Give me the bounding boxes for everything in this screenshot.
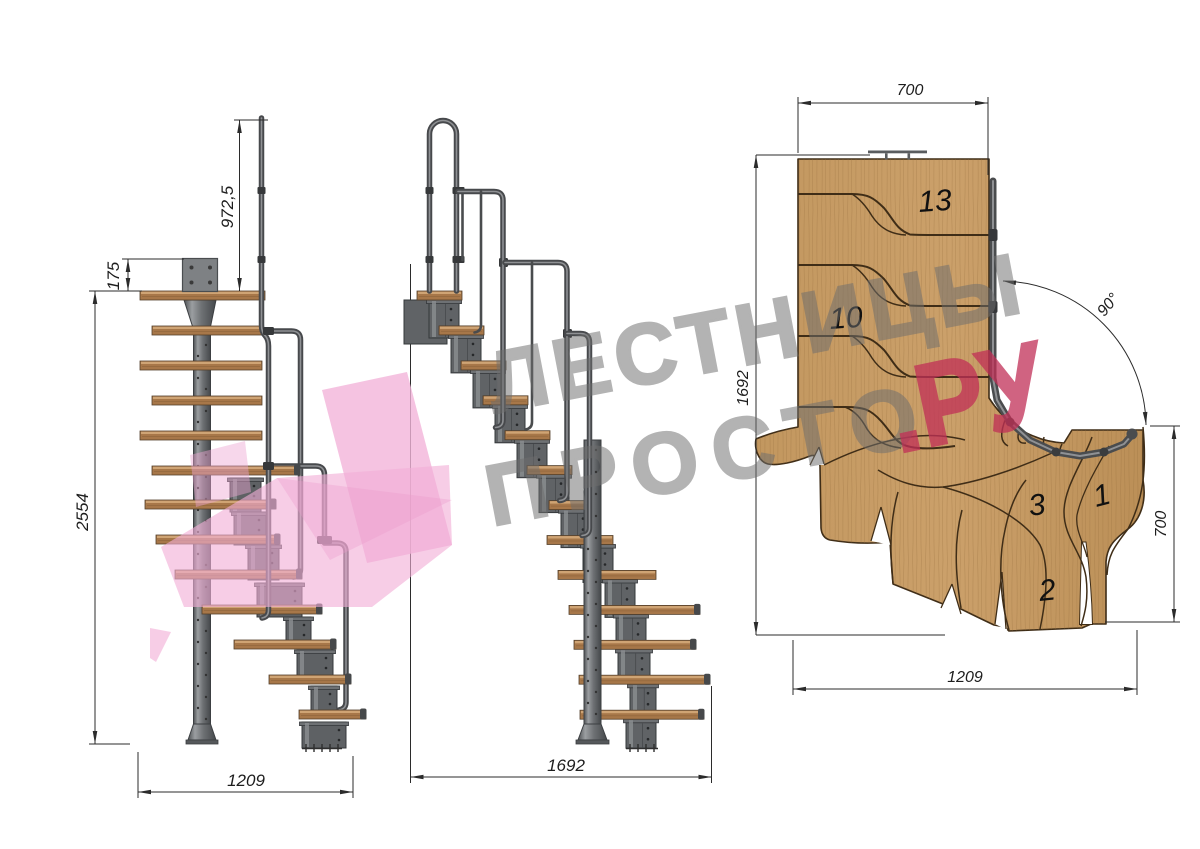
svg-text:1209: 1209: [947, 669, 983, 686]
svg-text:13: 13: [917, 184, 953, 219]
svg-text:700: 700: [897, 82, 924, 99]
svg-text:2554: 2554: [73, 493, 92, 532]
svg-text:972,5: 972,5: [218, 185, 237, 228]
svg-text:1692: 1692: [547, 756, 585, 775]
svg-text:1209: 1209: [227, 771, 265, 790]
svg-text:175: 175: [104, 261, 123, 290]
svg-text:700: 700: [1153, 511, 1170, 538]
